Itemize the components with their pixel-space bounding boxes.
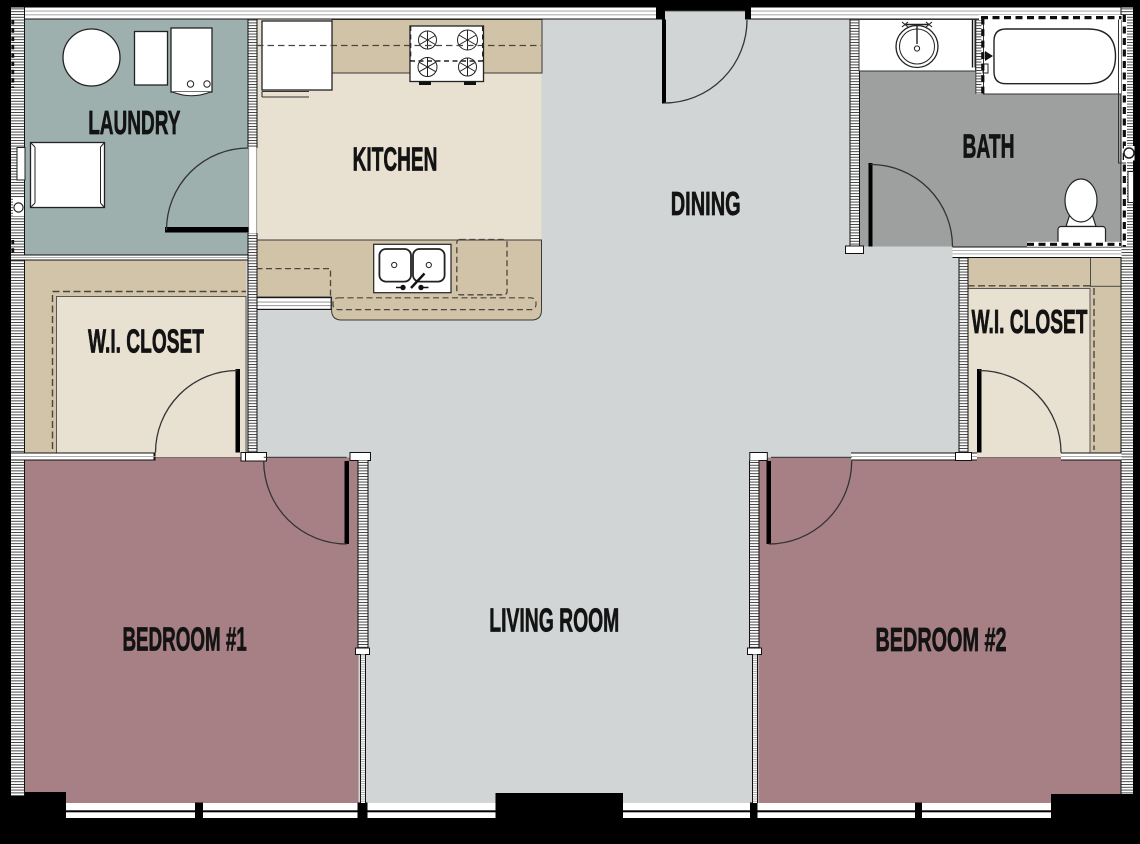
svg-text:LIVING ROOM: LIVING ROOM [489,602,619,639]
svg-text:W.I. CLOSET: W.I. CLOSET [88,323,204,360]
svg-text:BATH: BATH [963,128,1015,165]
svg-text:BEDROOM #1: BEDROOM #1 [122,621,246,658]
svg-text:DINING: DINING [671,185,741,222]
svg-text:BEDROOM #2: BEDROOM #2 [876,621,1007,658]
svg-text:LAUNDRY: LAUNDRY [88,104,180,141]
svg-text:KITCHEN: KITCHEN [353,141,438,178]
svg-text:W.I. CLOSET: W.I. CLOSET [972,303,1088,340]
